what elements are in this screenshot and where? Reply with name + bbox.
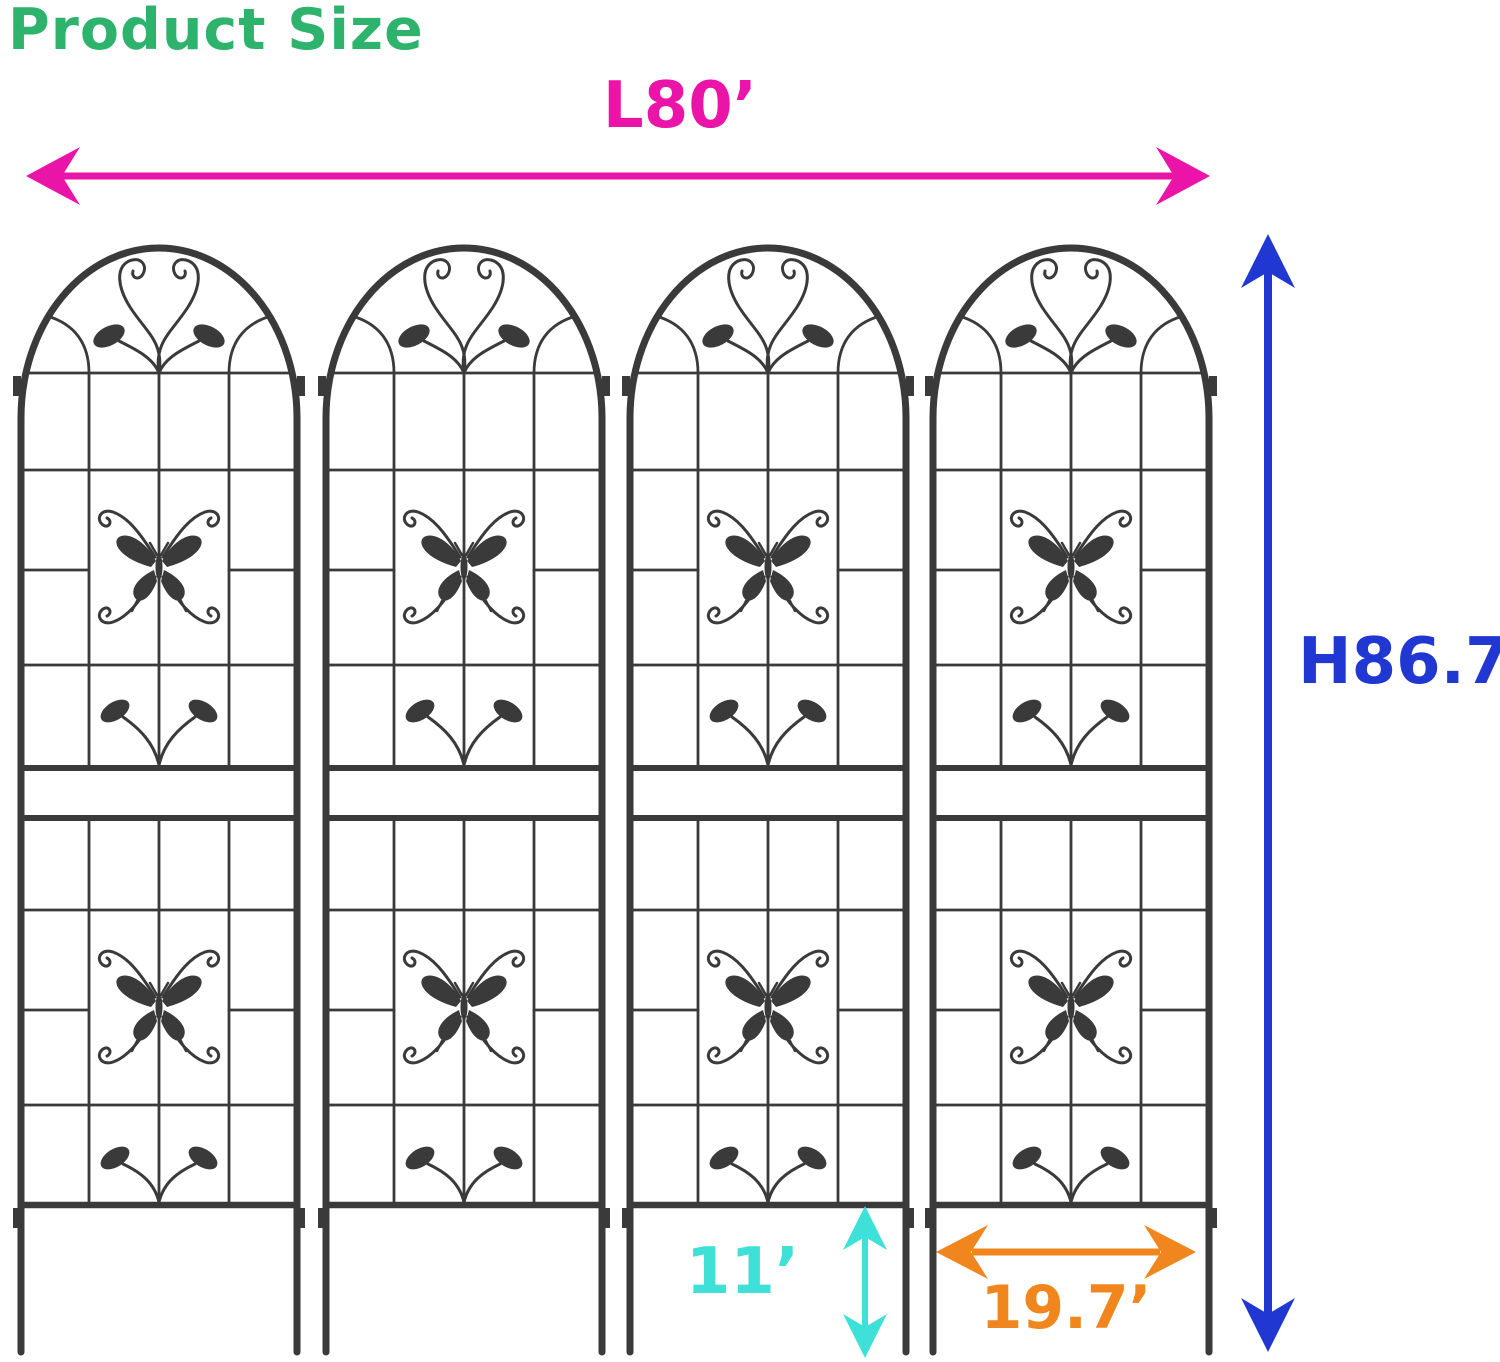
length-dimension-label: L80’ (560, 74, 800, 138)
height-dimension-label: H86.7’ (1298, 630, 1500, 694)
trellis-panel-1 (13, 248, 305, 1352)
panel-width-dimension-label: 19.7’ (952, 1278, 1180, 1338)
height-dimension-arrow (1241, 234, 1295, 1352)
spike-height-dimension-label: 11’ (650, 1240, 835, 1304)
product-size-diagram: Product Size L80’ H86.7’ 11’ 19.7’ (0, 0, 1500, 1362)
trellis-panel-3 (622, 248, 914, 1352)
length-dimension-arrow (26, 147, 1210, 205)
spike-height-dimension-arrow (843, 1206, 887, 1358)
panel-width-dimension-arrow (936, 1225, 1196, 1279)
trellis-panel-2 (318, 248, 610, 1352)
trellis-panel-4 (925, 248, 1217, 1352)
page-title: Product Size (8, 2, 424, 59)
